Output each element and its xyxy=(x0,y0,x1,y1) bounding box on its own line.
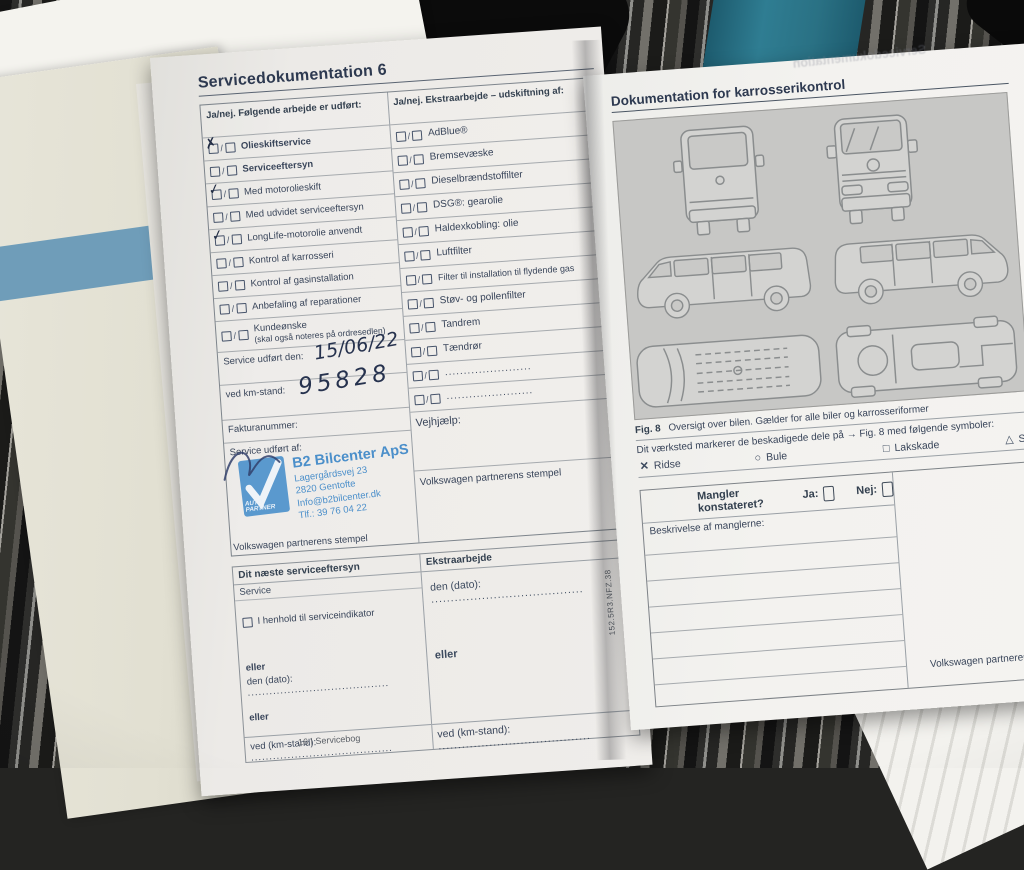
handwritten-mark: ✗ xyxy=(203,135,218,153)
no-checkbox xyxy=(881,481,893,497)
or-label: eller xyxy=(249,711,269,723)
next-service-table: Dit næste serviceeftersyn Ekstraarbejde … xyxy=(232,539,641,763)
stone-chip-symbol-icon: △ xyxy=(1005,432,1014,446)
extra-item-label: Bremsevæske xyxy=(429,149,493,164)
van-rear-view xyxy=(670,120,770,240)
extra-item-blank: ....................... xyxy=(446,386,533,403)
work-done-column: Ja/nej. Følgende arbejde er udført: /✗ O… xyxy=(200,93,418,556)
yes-checkbox xyxy=(405,275,416,286)
next-date-field: den (dato): ............................… xyxy=(246,664,428,699)
work-item-label: Anbefaling af reparationer xyxy=(252,295,362,313)
no-checkbox xyxy=(231,234,242,245)
van-front-view xyxy=(824,109,924,229)
no-label: Nej: xyxy=(856,484,878,497)
no-checkbox xyxy=(236,303,247,314)
yes-checkbox xyxy=(219,304,230,315)
yes-checkbox xyxy=(823,485,835,501)
yes-checkbox xyxy=(412,370,423,381)
service-date-label: Service udført den: xyxy=(223,351,304,368)
defects-table: Mangler konstateret? Ja: Nej: Beskrivels… xyxy=(639,461,1024,708)
no-checkbox xyxy=(238,330,249,341)
no-checkbox xyxy=(430,393,441,404)
extra-item-label: DSG®: gearolie xyxy=(433,196,504,211)
signature-scribble xyxy=(218,441,291,494)
invoice-label: Fakturanummer: xyxy=(228,420,298,436)
indicator-option-label: I henhold til serviceindikator xyxy=(257,608,375,627)
van-side-view-right xyxy=(824,222,1018,320)
extra-item-label: Filter til installation til flydende gas xyxy=(438,264,575,283)
next-service-left-cell: Service I henhold til serviceindikator e… xyxy=(234,572,432,762)
work-item-label: Med motorolieskift xyxy=(244,182,322,197)
or-label: eller xyxy=(435,648,458,662)
km-label: ved km-stand: xyxy=(225,385,285,400)
work-item-label: Med udvidet serviceeftersyn xyxy=(245,202,364,220)
yes-label: Ja: xyxy=(802,488,819,501)
handwritten-mark: ✓ xyxy=(207,181,222,199)
yes-checkbox xyxy=(210,166,221,177)
yes-checkbox xyxy=(409,322,420,333)
no-checkbox xyxy=(425,321,436,332)
no-checkbox xyxy=(427,345,438,356)
yes-checkbox xyxy=(213,212,224,223)
no-checkbox xyxy=(234,280,245,291)
description-label: Beskrivelse af manglerne: xyxy=(649,518,765,537)
yes-checkbox xyxy=(221,331,232,342)
no-checkbox xyxy=(413,154,424,165)
yes-checkbox xyxy=(407,298,418,309)
yes-checkbox xyxy=(216,258,227,269)
extra-item-label: Tændrør xyxy=(443,342,483,355)
yes-checkbox xyxy=(397,155,408,166)
yes-checkbox xyxy=(402,227,413,238)
work-item-label: Olieskiftservice xyxy=(241,137,312,152)
yes-checkbox xyxy=(400,203,411,214)
vehicle-overview-figure xyxy=(612,92,1024,420)
no-checkbox xyxy=(422,273,433,284)
or-label: eller xyxy=(245,661,265,673)
no-checkbox xyxy=(429,369,440,380)
handwritten-mark: ✓ xyxy=(210,227,225,245)
no-checkbox xyxy=(424,297,435,308)
yes-checkbox xyxy=(404,251,415,262)
service-book-right-page: Servicedokumentation Dokumentation for k… xyxy=(583,43,1024,730)
van-side-view-left xyxy=(627,236,821,334)
service-record-table: Ja/nej. Følgende arbejde er udført: /✗ O… xyxy=(199,77,626,557)
dent-symbol-icon: ○ xyxy=(754,451,762,463)
yes-checkbox xyxy=(414,394,425,405)
extra-item-label: Tandrem xyxy=(441,318,481,331)
no-checkbox xyxy=(417,202,428,213)
yes-checkbox xyxy=(395,131,406,142)
paint-damage-symbol-icon: □ xyxy=(882,442,890,454)
defects-description-cell: Beskrivelse af manglerne: xyxy=(643,504,908,706)
extra-item-label: Dieselbrændstoffilter xyxy=(431,171,523,188)
work-item-label: LongLife-motorolie anvendt xyxy=(247,226,363,244)
extra-item-blank: ....................... xyxy=(444,362,531,379)
work-item-label: Kontrol af gasinstallation xyxy=(250,272,354,289)
defects-question: Mangler konstateret? xyxy=(697,485,776,515)
indicator-checkbox xyxy=(242,617,253,628)
yes-checkbox xyxy=(218,281,229,292)
work-item-label: Kontrol af karrosseri xyxy=(249,251,335,267)
van-top-view xyxy=(634,329,825,412)
no-checkbox xyxy=(412,130,423,141)
no-checkbox xyxy=(229,211,240,222)
extra-item-label: Støv- og pollenfilter xyxy=(439,291,526,307)
no-checkbox xyxy=(418,225,429,236)
extra-item-label: Luftfilter xyxy=(436,246,472,259)
no-checkbox xyxy=(415,178,426,189)
scratch-symbol-icon: ✕ xyxy=(639,459,649,473)
extra-item-label: Haldexkobling: olie xyxy=(434,219,518,235)
no-checkbox xyxy=(420,249,431,260)
van-underside-view xyxy=(831,312,1022,401)
stamp-text: B2 Bilcenter ApS Lagergårdsvej 23 2820 G… xyxy=(291,441,416,523)
yes-checkbox xyxy=(410,346,421,357)
no-checkbox xyxy=(225,142,236,153)
no-checkbox xyxy=(233,257,244,268)
no-checkbox xyxy=(226,165,237,176)
no-checkbox xyxy=(228,188,239,199)
yes-checkbox xyxy=(399,179,410,190)
stamp-caption: Volkswagen partnerens stempel xyxy=(233,533,368,553)
stamp-caption: Volkswagen partnerens stempel xyxy=(930,649,1024,670)
work-item-label: Serviceeftersyn xyxy=(242,160,313,175)
extra-item-label: AdBlue® xyxy=(428,126,468,139)
performed-by-cell: Service udført af: AUTO- PARTNER xyxy=(224,430,418,556)
